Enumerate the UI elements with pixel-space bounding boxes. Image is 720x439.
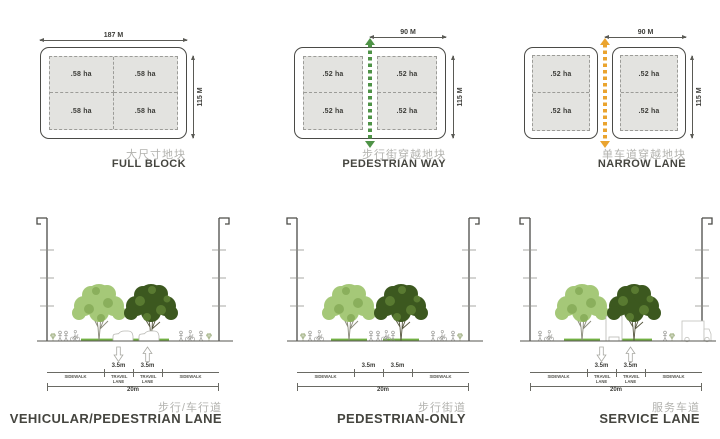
block-cell: .52 ha [304, 57, 362, 93]
block-cell: .52 ha [621, 56, 677, 93]
tree-icon [555, 284, 609, 341]
dim-full-block-width: 187 M [40, 40, 187, 41]
lane-width-label: 3.5m [391, 363, 405, 369]
lane-dimension-line [297, 372, 469, 373]
narrow-lane-plan-left: .52 ha .52 ha [524, 47, 598, 139]
arrow-shaft [603, 44, 607, 142]
section-drawing-pedestrian [285, 210, 485, 370]
person-icon [58, 331, 62, 341]
person-icon [369, 331, 373, 341]
dim-label: 90 M [636, 29, 656, 36]
dim-label: 115 M [457, 87, 464, 106]
tree-icon [72, 284, 126, 341]
lane-dimension-line [530, 372, 702, 373]
section-title-en: PEDESTRIAN-ONLY [252, 411, 466, 426]
section-title-en: SERVICE LANE [486, 411, 700, 426]
block-cell: .58 ha [50, 57, 114, 93]
block-cell: .52 ha [533, 93, 589, 130]
bicycle-icon [544, 330, 553, 341]
dim-label: 90 M [398, 29, 418, 36]
shrub-icon [50, 333, 55, 341]
dim-pedestrian-way-width: 90 M [370, 37, 446, 38]
block-cell: .52 ha [533, 56, 589, 93]
person-icon [179, 331, 183, 341]
car-icon [139, 331, 159, 341]
zone-label: SIDEWALK [179, 375, 201, 380]
dim-label: 115 M [197, 87, 204, 106]
person-icon [308, 331, 312, 341]
block-cells-right: .52 ha .52 ha [620, 55, 678, 131]
person-icon [451, 331, 455, 341]
lane-width-label: 3.5m [624, 363, 638, 369]
person-icon [663, 331, 667, 341]
zone-label: SIDEWALK [314, 375, 336, 380]
person-icon [64, 331, 68, 341]
shrub-icon [300, 333, 305, 341]
traffic-arrow-down-icon [114, 347, 123, 362]
shrub-icon [669, 333, 674, 341]
dim-label: 115 M [696, 87, 703, 106]
block-cells-right: .52 ha .52 ha [377, 56, 437, 130]
zone-label: TRAVEL LANE [111, 375, 126, 385]
lane-width-label: 3.5m [112, 363, 126, 369]
lane-dimension-line [47, 372, 219, 373]
total-width-label: 20m [127, 387, 139, 393]
person-icon [538, 331, 542, 341]
tree-icon [322, 284, 376, 341]
section-drawing-service [518, 210, 718, 370]
zone-label: SIDEWALK [64, 375, 86, 380]
dim-label: 187 M [102, 32, 125, 39]
full-block-plan: .58 ha .58 ha .58 ha .58 ha [40, 47, 187, 139]
total-width-label: 20m [377, 387, 389, 393]
section-drawing-vehicular [35, 210, 235, 370]
block-cells: .58 ha .58 ha .58 ha .58 ha [49, 56, 178, 130]
bicycle-icon [437, 330, 446, 341]
tree-icon [374, 284, 428, 341]
building-wall-left [37, 218, 47, 341]
block-cells-left: .52 ha .52 ha [532, 55, 590, 131]
arrow-shaft [368, 44, 372, 142]
narrow-lane-plan-right: .52 ha .52 ha [612, 47, 686, 139]
truck-icon [682, 321, 711, 342]
bicycle-icon [185, 330, 194, 341]
urban-design-diagram: 187 M .58 ha .58 ha .58 ha .58 ha 115 M … [0, 0, 720, 439]
shrub-icon [457, 333, 462, 341]
bicycle-icon [314, 330, 323, 341]
zone-label: TRAVEL LANE [140, 375, 155, 385]
zone-label: SIDEWALK [662, 375, 684, 380]
building-wall-right [219, 218, 229, 341]
narrow-lane-arrow [603, 38, 607, 148]
zone-label: SIDEWALK [429, 375, 451, 380]
block-cells-left: .52 ha .52 ha [303, 56, 363, 130]
dim-full-block-height: 115 M [193, 56, 194, 138]
dim-pedestrian-way-height: 115 M [453, 56, 454, 138]
block-cell: .58 ha [50, 93, 114, 129]
lane-width-label: 3.5m [362, 363, 376, 369]
traffic-arrow-up-icon [626, 347, 635, 362]
section-title-en: VEHICULAR/PEDESTRIAN LANE [8, 411, 222, 426]
block-cell: .52 ha [304, 93, 362, 129]
pedestrian-way-arrow [368, 38, 372, 148]
building-wall-right [469, 218, 479, 341]
traffic-arrow-down-icon [597, 347, 606, 362]
traffic-arrow-up-icon [143, 347, 152, 362]
bicycle-icon [70, 330, 79, 341]
person-icon [376, 331, 380, 341]
zone-label: TRAVEL LANE [594, 375, 609, 385]
block-cell: .58 ha [114, 93, 178, 129]
block-cell: .58 ha [114, 57, 178, 93]
building-wall-left [287, 218, 297, 341]
block-cell: .52 ha [378, 57, 436, 93]
block-title-en: PEDESTRIAN WAY [280, 158, 446, 170]
person-icon [199, 331, 203, 341]
block-title-en: NARROW LANE [520, 158, 686, 170]
person-icon [431, 331, 435, 341]
zone-label: SIDEWALK [547, 375, 569, 380]
zone-label: TRAVEL LANE [623, 375, 638, 385]
building-wall-left [520, 218, 530, 341]
lane-width-label: 3.5m [141, 363, 155, 369]
car-icon [113, 331, 133, 341]
block-cell: .52 ha [621, 93, 677, 130]
block-cell: .52 ha [378, 93, 436, 129]
dim-narrow-lane-width: 90 M [605, 37, 686, 38]
block-title-en: FULL BLOCK [20, 158, 186, 170]
shrub-icon [206, 333, 211, 341]
dim-narrow-lane-height: 115 M [692, 56, 693, 138]
lane-width-label: 3.5m [595, 363, 609, 369]
total-width-label: 20m [610, 387, 622, 393]
